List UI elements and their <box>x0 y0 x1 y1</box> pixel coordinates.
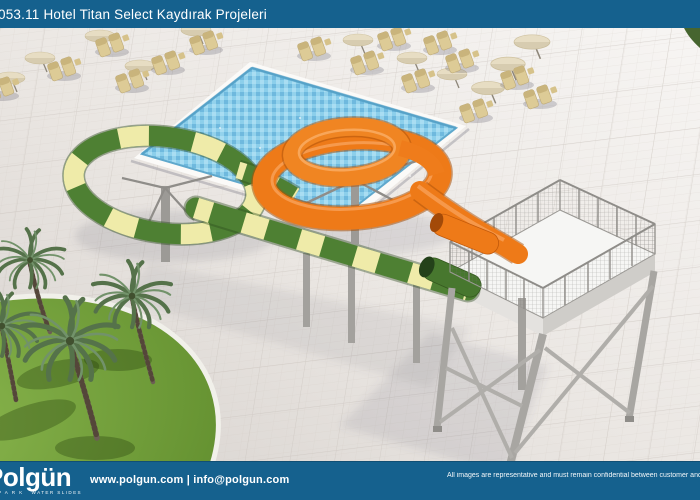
brand-tagline-left: P A R K <box>0 490 24 495</box>
brand-tagline: P A R K WATER SLIDES <box>0 490 86 495</box>
project-slide: 053.11 Hotel Titan Select Kaydırak Proje… <box>0 0 700 500</box>
brand-tagline-right: WATER SLIDES <box>32 490 83 495</box>
header-bar: 053.11 Hotel Titan Select Kaydırak Proje… <box>0 0 700 28</box>
waterslide-render <box>0 28 700 462</box>
brand-name: Polgün <box>0 465 86 490</box>
brand-logo: Polgün P A R K WATER SLIDES <box>0 465 86 495</box>
disclaimer-text: All images are representative and must r… <box>447 472 700 479</box>
render-scene <box>0 28 700 462</box>
contact-links: www.polgun.com | info@polgun.com <box>90 474 289 486</box>
page-title: 053.11 Hotel Titan Select Kaydırak Proje… <box>0 7 267 22</box>
footer-bar: Polgün P A R K WATER SLIDES www.polgun.c… <box>0 461 700 500</box>
